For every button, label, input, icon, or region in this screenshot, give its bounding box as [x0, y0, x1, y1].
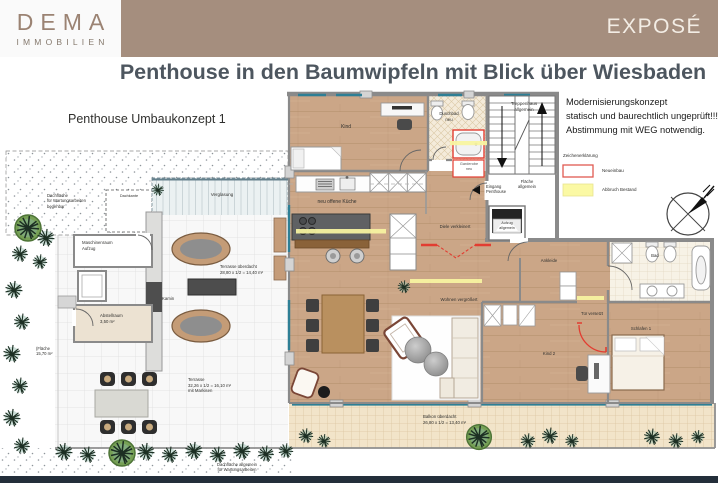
- room-aufzug: Aufzug allgemein: [499, 221, 514, 230]
- roof-area-label: Dachfläche für Wartungsarbeiten begehbar: [47, 193, 86, 209]
- legend-title: Zeichenerklärung: [563, 153, 598, 159]
- room-kind1: Kind: [341, 124, 351, 131]
- room-terrasse-ueberdacht: Terrasse überdacht 28,80 x 1/2 = 14,40 m…: [220, 264, 263, 275]
- roof-bottom-label: Dachfläche allgemein für Wartungsarbeite…: [217, 462, 257, 473]
- room-garderobe: Garderobe neu: [460, 162, 478, 172]
- ankleide-closets: [560, 272, 576, 300]
- expose-label: EXPOSÉ: [607, 15, 702, 39]
- room-maschinenraum: Maschinenraum Aufzug: [82, 240, 113, 251]
- room-kueche: neu offene Küche: [317, 199, 356, 206]
- room-kind2: Kind 2: [543, 351, 555, 357]
- fireplace: [188, 279, 236, 295]
- room-schlafen1: Schlafen 1: [631, 326, 651, 332]
- room-verglasung: Verglasung: [211, 192, 234, 198]
- room-eingang: Eingang Penthouse: [486, 184, 506, 195]
- footer-bar: [0, 476, 718, 483]
- legend-abbruch-label: Abbruch Bestand: [602, 187, 637, 193]
- page-title: Penthouse in den Baumwipfeln mit Blick ü…: [110, 60, 716, 85]
- modernization-note: Modernisierungskonzept statisch und baur…: [566, 96, 718, 138]
- room-abstellraum: Abstellraum 3,50 m²: [100, 313, 123, 324]
- legend-neubau-label: Neueinbau: [602, 168, 624, 174]
- expose-page: { "header": { "logo_word": "DEMA", "logo…: [0, 0, 718, 483]
- room-treppenhaus: Treppenhaus allgemein: [511, 101, 537, 113]
- room-flaeche-klein: (Fläche 15,70 m²: [36, 346, 53, 357]
- dema-logo: DEMA IMMOBILIEN: [0, 0, 121, 57]
- floor-plan: [0, 88, 718, 483]
- roof-edge-label: Dachkante: [120, 194, 138, 199]
- room-diele: Diele verkleinert: [440, 224, 471, 230]
- new-bathtub: [450, 130, 487, 158]
- room-kamin: Kamin: [162, 296, 174, 302]
- schlafen1-furniture: [612, 335, 664, 390]
- legend-swatches: [563, 165, 593, 196]
- room-duschbad: Duschbad neu: [439, 111, 458, 122]
- room-flaeche: Fläche allgemein: [518, 179, 536, 190]
- room-ankleide: Ankleide: [541, 258, 557, 264]
- hall-cabinets: [390, 214, 416, 270]
- logo-subtitle: IMMOBILIEN: [16, 37, 108, 47]
- terrace-dining-set: [95, 372, 157, 434]
- compass-icon: [667, 185, 714, 235]
- room-bad: Bad: [651, 253, 659, 259]
- concept-label: Penthouse Umbaukonzept 1: [68, 111, 226, 127]
- logo-wordmark: DEMA: [17, 11, 111, 34]
- room-wohnen: Wohnen vergrößert: [441, 297, 478, 303]
- room-tuer-versetzt: Tür versetzt: [581, 311, 603, 316]
- floor-plan-drawing: [0, 88, 718, 483]
- room-balkon: Balkon überdacht 26,80 x 1/2 = 13,40 m²: [423, 414, 466, 425]
- room-terrasse: Terrasse 32,26 x 1/2 = 16,10 m² mit Mark…: [188, 377, 231, 394]
